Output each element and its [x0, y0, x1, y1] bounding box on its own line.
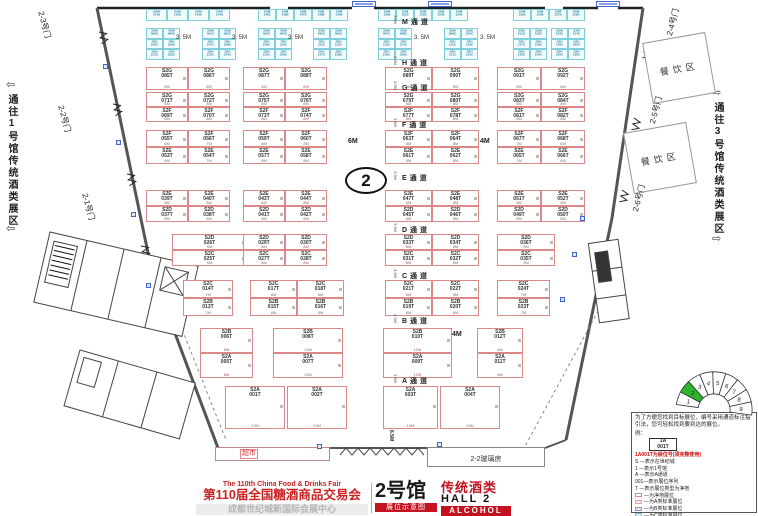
power-marker-icon: [342, 405, 345, 408]
booth-S2M-100C: S2M100C: [461, 28, 478, 39]
booth-S2H-123C: S2H123C: [202, 49, 219, 60]
booth-S2C-017T: S2C017T8M: [250, 280, 297, 298]
booth-S2H-105C: S2H105C: [146, 39, 163, 50]
booth-S2D-042T: S2D042T8M: [285, 206, 327, 222]
left-corridor-label: 通往1号馆传统酒类展区: [4, 94, 19, 227]
power-marker-icon: [518, 364, 521, 367]
booth-S2H-109C: S2H109C: [258, 39, 275, 50]
booth-S2B-010T: S2B010T12M: [383, 328, 452, 353]
power-marker-icon: [183, 138, 186, 141]
left-arrow-top-icon: ⇦: [6, 78, 15, 91]
booth-S2H-125C: S2H125C: [258, 49, 275, 60]
gate-label-2-3号门: 2-3号门: [35, 10, 53, 39]
aisle-width-marker: 3.5M: [393, 223, 398, 232]
power-marker-icon: [433, 405, 436, 408]
power-marker-icon: [292, 306, 295, 309]
booth-S2H-121C: S2H121C: [146, 49, 163, 60]
legend-panel: 为了方便您找到目标展位，编号采用通道标注指引法，您可轻松找到要到达的展位。 例：…: [631, 412, 757, 513]
fire-hydrant-icon: [580, 216, 585, 221]
gap-width-label: 3. 5M: [414, 35, 429, 41]
booth-S2M-146S: S2M146S: [276, 9, 294, 21]
power-marker-icon: [536, 77, 539, 80]
booth-type-swatch-icon: [635, 500, 642, 504]
booth-S2H-128C: S2H128C: [330, 49, 347, 60]
booth-S2H-112C: S2H112C: [330, 39, 347, 50]
aisle-label-H通道: H通道: [402, 58, 430, 68]
booth-S2E-044T: S2E044T8M: [285, 190, 327, 206]
booth-S2G-079T: S2G079T8M: [385, 92, 432, 107]
booth-S2E-048T: S2E048T8M: [432, 190, 479, 206]
booth-S2M-141S: S2M141S: [146, 9, 167, 21]
legend-decode-line: A —表示A通道: [635, 472, 753, 479]
booth-S2G-083T: S2G083T8M: [497, 92, 541, 107]
booth-S2B-023T: S2B023T7M: [497, 298, 550, 316]
power-marker-icon: [292, 288, 295, 291]
power-marker-icon: [322, 257, 325, 260]
power-marker-icon: [580, 155, 583, 158]
booth-S2F-056T: S2F056T7M: [188, 130, 230, 147]
booth-S2A-004T: S2A004T10M: [440, 386, 500, 429]
booth-S2F-060T: S2F060T8M: [285, 130, 327, 147]
booth-S2F-055T: S2F055T6M: [146, 130, 188, 147]
booth-S2G-090T: S2G090T8M: [432, 67, 479, 90]
booth-S2B-008T: S2B008T12M: [273, 328, 343, 353]
booth-S2D-049T: S2D049T8M: [497, 206, 541, 222]
gap-width-label: 3. 5M: [288, 35, 303, 41]
gate-label-2-5号门: 2-5号门: [647, 95, 665, 124]
booth-S2C-035T: S2C035T9M: [497, 250, 555, 266]
power-marker-icon: [322, 114, 325, 117]
fire-hydrant-icon: [572, 252, 577, 257]
power-marker-icon: [447, 339, 450, 342]
power-marker-icon: [474, 257, 477, 260]
booth-S2F-064T: S2F064T8M: [432, 130, 479, 147]
booth-S2D-046T: S2D046T8M: [432, 206, 479, 222]
power-marker-icon: [280, 257, 283, 260]
power-marker-icon: [228, 288, 231, 291]
booth-S2M-096C: S2M096C: [330, 28, 347, 39]
booth-S2C-031T: S2C031T8M: [385, 250, 432, 266]
booth-S2G-086T: S2G086T8M: [188, 67, 230, 90]
aisle-label-M通道: M通道: [402, 17, 431, 27]
power-marker-icon: [280, 114, 283, 117]
booth-S2B-016T: S2B016T8M: [297, 298, 344, 316]
booth-S2G-080T: S2G080T8M: [432, 92, 479, 107]
aisle-label-E通道: E通道: [402, 173, 430, 183]
booth-S2A-011T: S2A011T8M: [477, 353, 523, 378]
booth-S2D-030T: S2D030T8M: [285, 234, 327, 250]
dining-area-2: 餐饮区: [623, 122, 697, 194]
power-marker-icon: [183, 99, 186, 102]
power-marker-icon: [536, 99, 539, 102]
booth-S2M-156S: S2M156S: [531, 9, 549, 21]
dining-area-1: 餐饮区: [642, 32, 716, 104]
booth-S2B-006T: S2B006T8M: [200, 328, 253, 353]
booth-S2E-052T: S2E052T8M: [541, 190, 585, 206]
aisle-label-C通道: C通道: [402, 271, 430, 281]
booth-type-swatch-icon: [635, 493, 642, 497]
booth-S2C-024T: S2C024T7M: [497, 280, 550, 298]
power-marker-icon: [427, 241, 430, 244]
booth-S2M-102C: S2M102C: [530, 28, 547, 39]
booth-S2M-153S: S2M153S: [432, 9, 450, 21]
banner-chinese-title: 第110届全国糖酒商品交易会: [196, 489, 368, 503]
right-arrow-bottom-icon: ⇨: [712, 232, 721, 245]
power-marker-icon: [322, 155, 325, 158]
power-marker-icon: [474, 99, 477, 102]
power-marker-icon: [474, 138, 477, 141]
booth-S2E-051T: S2E051T8M: [497, 190, 541, 206]
power-marker-icon: [427, 306, 430, 309]
legend-sample-bottom: 001T: [650, 445, 676, 451]
booth-S2M-089C: S2M089C: [146, 28, 163, 39]
booth-S2H-113C: S2H113C: [378, 39, 395, 50]
power-marker-icon: [280, 99, 283, 102]
power-marker-icon: [536, 155, 539, 158]
power-marker-icon: [183, 77, 186, 80]
booth-S2M-158S: S2M158S: [567, 9, 585, 21]
power-marker-icon: [322, 77, 325, 80]
aisle-label-A通道: A通道: [402, 376, 430, 386]
booth-S2H-136C: S2H136C: [568, 49, 585, 60]
booth-S2M-157S: S2M157S: [549, 9, 567, 21]
supermarket-label: 超市: [240, 449, 258, 459]
booth-S2D-036T: S2D036T9M: [497, 234, 555, 250]
power-marker-icon: [183, 155, 186, 158]
booth-S2D-026T: S2D026T9M: [172, 234, 247, 250]
booth-S2M-148S: S2M148S: [312, 9, 330, 21]
booth-S2C-018T: S2C018T8M: [297, 280, 344, 298]
booth-S2H-120C: S2H120C: [568, 39, 585, 50]
power-marker-icon: [580, 114, 583, 117]
banner-venue: 成都世纪城新国际会展中心: [196, 504, 368, 515]
aisle-width-marker: 3.5M: [393, 314, 398, 323]
aisle-label-B通道: B通道: [402, 316, 430, 326]
booth-S2C-032T: S2C032T8M: [432, 250, 479, 266]
booth-S2H-133C: S2H133C: [513, 49, 530, 60]
power-marker-icon: [474, 213, 477, 216]
power-marker-icon: [580, 77, 583, 80]
legend-intro: 为了方便您找到目标展位，编号采用通道标注指引法，您可轻松找到要到达的展位。: [635, 415, 753, 429]
power-marker-icon: [536, 138, 539, 141]
fire-hydrant-icon: [131, 212, 136, 217]
booth-S2E-040T: S2E040T8M: [188, 190, 230, 206]
booth-S2M-149S: S2M149S: [330, 9, 348, 21]
booth-S2H-117C: S2H117C: [513, 39, 530, 50]
booth-S2H-119C: S2H119C: [551, 39, 568, 50]
power-marker-icon: [427, 197, 430, 200]
power-marker-icon: [474, 241, 477, 244]
fire-hydrant-icon: [560, 297, 565, 302]
booth-S2M-142S: S2M142S: [167, 9, 188, 21]
booth-S2F-078T: S2F078T8M: [432, 107, 479, 122]
booth-S2H-124C: S2H124C: [219, 49, 236, 60]
booth-S2G-088T: S2G088T8M: [285, 67, 327, 90]
booth-S2B-012T: S2B012T8M: [477, 328, 523, 353]
booth-S2A-005T: S2A005T8M: [200, 353, 253, 378]
power-marker-icon: [183, 114, 186, 117]
title-banner: The 110th China Food & Drinks Fair 第110届…: [196, 481, 512, 515]
legend-sample-booth: 1A 001T: [649, 438, 677, 452]
power-marker-icon: [536, 197, 539, 200]
dimension-label-4M: 4M: [452, 331, 462, 338]
power-marker-icon: [550, 257, 553, 260]
legend-decode-line: 001—表示展位序列: [635, 479, 753, 486]
power-marker-icon: [183, 197, 186, 200]
booth-S2E-061T: S2E061T8M: [385, 147, 432, 164]
fire-hydrant-icon: [103, 64, 108, 69]
power-marker-icon: [225, 213, 228, 216]
booth-S2E-058T: S2E058T8M: [285, 147, 327, 164]
banner-divider: [371, 483, 372, 513]
power-marker-icon: [580, 197, 583, 200]
legend-booth-types: —为净地展位—为A类标准展位—为B类标准展位—为C类标准展位—为D类标准展位: [635, 493, 753, 516]
dimension-label-4M: 4M: [480, 138, 490, 145]
legend-decode-line: S —表示在世纪城: [635, 459, 753, 466]
aisle-width-marker: 3.5M: [393, 81, 398, 90]
banner-hall-name: 2号馆: [375, 481, 437, 502]
booth-S2E-053T: S2E053T6M: [146, 147, 188, 164]
booth-S2G-075T: S2G075T8M: [243, 92, 285, 107]
power-marker-icon: [228, 306, 231, 309]
booth-S2D-045T: S2D045T8M: [385, 206, 432, 222]
fire-hydrant-icon: [146, 283, 151, 288]
booth-S2G-087T: S2G087T8M: [243, 67, 285, 90]
booth-S2H-115C: S2H115C: [444, 39, 461, 50]
power-marker-icon: [225, 114, 228, 117]
booth-S2B-013T: S2B013T7M: [183, 298, 233, 316]
power-marker-icon: [280, 77, 283, 80]
power-marker-icon: [536, 114, 539, 117]
booth-S2M-093C: S2M093C: [258, 28, 275, 39]
booth-S2M-145S: S2M145S: [258, 9, 276, 21]
floor-plan-stage: ⇦ 通往1号馆传统酒类展区 ⇦ ⇨ 通往3号馆传统酒类展区 ⇨ 餐饮区 餐饮区 …: [0, 0, 758, 516]
booth-S2E-065T: S2E065T7M: [497, 147, 541, 164]
booth-S2M-101C: S2M101C: [513, 28, 530, 39]
booth-S2E-054T: S2E054T7M: [188, 147, 230, 164]
booth-S2G-091T: S2G091T8M: [497, 67, 541, 90]
power-marker-icon: [474, 288, 477, 291]
booth-S2A-003T: S2A003T10M: [383, 386, 438, 429]
booth-S2E-039T: S2E039T8M: [146, 190, 188, 206]
booth-S2B-020T: S2B020T8M: [432, 298, 479, 316]
booth-S2F-082T: S2F082T8M: [541, 107, 585, 122]
banner-map-badge: 展位示意图: [375, 503, 437, 512]
gate-label-2-2号门: 2-2号门: [55, 104, 73, 133]
aisle-label-F通道: F通道: [402, 120, 429, 130]
booth-S2D-034T: S2D034T8M: [432, 234, 479, 250]
booth-S2C-022T: S2C022T8M: [432, 280, 479, 298]
booth-S2C-021T: S2C021T8M: [385, 280, 432, 298]
gap-width-label: 3. 5M: [232, 35, 247, 41]
power-marker-icon: [427, 99, 430, 102]
booth-S2F-074T: S2F074T8M: [285, 107, 327, 122]
power-marker-icon: [518, 339, 521, 342]
booth-S2M-103C: S2M103C: [551, 28, 568, 39]
power-marker-icon: [427, 114, 430, 117]
power-marker-icon: [225, 138, 228, 141]
aisle-width-marker: 3.5M: [393, 269, 398, 278]
power-marker-icon: [322, 99, 325, 102]
power-marker-icon: [322, 138, 325, 141]
power-marker-icon: [550, 241, 553, 244]
booth-S2D-050T: S2D050T8M: [541, 206, 585, 222]
booth-S2G-092T: S2G092T8M: [541, 67, 585, 90]
glass-house-label: 2-2玻璃房: [470, 456, 501, 463]
booth-S2F-067T: S2F067T7M: [497, 130, 541, 147]
power-marker-icon: [545, 288, 548, 291]
power-marker-icon: [580, 138, 583, 141]
booth-S2M-095C: S2M095C: [313, 28, 330, 39]
legend-decode-list: S —表示在世纪城1 —表示1号馆A —表示A通道001—表示展位序列T —表示…: [635, 459, 753, 493]
power-marker-icon: [474, 306, 477, 309]
booth-S2M-155S: S2M155S: [513, 9, 531, 21]
booth-S2A-007T: S2A007T12M: [273, 353, 343, 378]
booth-S2D-041T: S2D041T8M: [243, 206, 285, 222]
booth-S2M-104C: S2M104C: [568, 28, 585, 39]
legend-type-row: —为B类标准展位: [635, 506, 753, 513]
booth-S2F-081T: S2F081T8M: [497, 107, 541, 122]
right-corridor-label: 通往3号馆传统酒类展区: [710, 102, 725, 235]
power-marker-icon: [280, 241, 283, 244]
booth-S2M-098C: S2M098C: [395, 28, 412, 39]
power-marker-icon: [427, 288, 430, 291]
power-marker-icon: [322, 241, 325, 244]
booth-S2M-154S: S2M154S: [450, 9, 468, 21]
power-marker-icon: [225, 99, 228, 102]
power-marker-icon: [183, 213, 186, 216]
booth-S2F-059T: S2F059T8M: [243, 130, 285, 147]
booth-S2F-069T: S2F069T8M: [146, 107, 188, 122]
power-marker-icon: [474, 114, 477, 117]
power-marker-icon: [338, 364, 341, 367]
booth-S2G-076T: S2G076T8M: [285, 92, 327, 107]
legend-example-label: 例：: [635, 429, 753, 437]
glass-house: 2-2玻璃房: [427, 447, 545, 467]
gate-label-2-1号门: 2-1号门: [79, 192, 97, 221]
door-tag: [428, 1, 452, 7]
legend-type-row: —为A类标准展位: [635, 499, 753, 506]
booth-S2H-126C: S2H126C: [275, 49, 292, 60]
power-marker-icon: [248, 364, 251, 367]
booth-S2E-047T: S2E047T8M: [385, 190, 432, 206]
booth-S2H-134C: S2H134C: [530, 49, 547, 60]
power-marker-icon: [338, 339, 341, 342]
dimension-label-6.5M: 6.5M: [388, 430, 394, 441]
power-marker-icon: [322, 197, 325, 200]
booth-S2M-097C: S2M097C: [378, 28, 395, 39]
fire-hydrant-icon: [116, 140, 121, 145]
booth-S2M-143S: S2M143S: [188, 9, 209, 21]
booth-S2E-062T: S2E062T8M: [432, 147, 479, 164]
power-marker-icon: [474, 155, 477, 158]
power-marker-icon: [580, 99, 583, 102]
power-marker-icon: [225, 197, 228, 200]
banner-hall-english: HALL 2: [441, 494, 511, 505]
power-marker-icon: [280, 138, 283, 141]
aisle-width-marker: 3.5M: [393, 171, 398, 180]
power-marker-icon: [280, 155, 283, 158]
gap-width-label: 3. 5M: [480, 35, 495, 41]
power-marker-icon: [427, 77, 430, 80]
booth-S2A-001T: S2A001T10M: [225, 386, 285, 429]
booth-S2H-127C: S2H127C: [313, 49, 330, 60]
power-marker-icon: [339, 288, 342, 291]
aisle-label-G通道: G通道: [402, 83, 430, 93]
legend-decode-line: T —表示展位类型为净地: [635, 486, 753, 493]
booth-S2C-025T: S2C025T9M: [172, 250, 247, 266]
power-marker-icon: [427, 155, 430, 158]
aisle-width-marker: 3.5M: [393, 374, 398, 383]
booth-S2E-057T: S2E057T8M: [243, 147, 285, 164]
power-marker-icon: [447, 364, 450, 367]
aisle-label-D通道: D通道: [402, 225, 430, 235]
gate-label-2-4号门: 2-4号门: [664, 7, 682, 36]
power-marker-icon: [427, 213, 430, 216]
power-marker-icon: [322, 213, 325, 216]
booth-S2H-118C: S2H118C: [530, 39, 547, 50]
booth-S2H-111C: S2H111C: [313, 39, 330, 50]
booth-S2F-068T: S2F068T6M: [541, 130, 585, 147]
booth-S2E-066T: S2E066T6M: [541, 147, 585, 164]
power-marker-icon: [427, 257, 430, 260]
power-marker-icon: [225, 77, 228, 80]
booth-S2G-071T: S2G071T8M: [146, 92, 188, 107]
booth-S2H-132C: S2H132C: [461, 49, 478, 60]
power-marker-icon: [339, 306, 342, 309]
booth-S2D-038T: S2D038T8M: [188, 206, 230, 222]
booth-S2M-147S: S2M147S: [294, 9, 312, 21]
power-marker-icon: [495, 405, 498, 408]
booth-S2G-084T: S2G084T8M: [541, 92, 585, 107]
booth-S2B-015T: S2B015T8M: [250, 298, 297, 316]
power-marker-icon: [536, 213, 539, 216]
booth-S2M-099C: S2M099C: [444, 28, 461, 39]
aisle-width-marker: 3.5M: [393, 15, 398, 24]
booth-S2F-073T: S2F073T8M: [243, 107, 285, 122]
booth-S2H-116C: S2H116C: [461, 39, 478, 50]
power-marker-icon: [280, 405, 283, 408]
booth-type-swatch-icon: [635, 507, 642, 511]
booth-S2G-072T: S2G072T8M: [188, 92, 230, 107]
booth-S2D-033T: S2D033T8M: [385, 234, 432, 250]
booth-S2G-085T: S2G085T8M: [146, 67, 188, 90]
booth-S2C-028T: S2C028T8M: [285, 250, 327, 266]
booth-S2F-063T: S2F063T8M: [385, 130, 432, 147]
aisle-width-marker: 3.5M: [393, 118, 398, 127]
booth-S2H-114C: S2H114C: [395, 39, 412, 50]
booth-S2M-091C: S2M091C: [202, 28, 219, 39]
booth-S2E-043T: S2E043T8M: [243, 190, 285, 206]
dimension-label-6M: 6M: [348, 138, 358, 145]
booth-S2H-107C: S2H107C: [202, 39, 219, 50]
gap-width-label: 3. 5M: [176, 35, 191, 41]
hall-number-circle: 2: [345, 167, 387, 194]
booth-S2H-135C: S2H135C: [551, 49, 568, 60]
aisle-width-marker: 3.5M: [393, 56, 398, 65]
booth-S2H-122C: S2H122C: [163, 49, 180, 60]
power-marker-icon: [225, 155, 228, 158]
door-tag: [596, 1, 620, 7]
power-marker-icon: [280, 213, 283, 216]
booth-S2D-037T: S2D037T8M: [146, 206, 188, 222]
left-arrow-bottom-icon: ⇦: [6, 222, 15, 235]
booth-S2C-027T: S2C027T8M: [243, 250, 285, 266]
booth-S2F-070T: S2F070T8M: [188, 107, 230, 122]
power-marker-icon: [427, 138, 430, 141]
door-tag: [352, 1, 376, 7]
booth-S2C-014T: S2C014T7M: [183, 280, 233, 298]
